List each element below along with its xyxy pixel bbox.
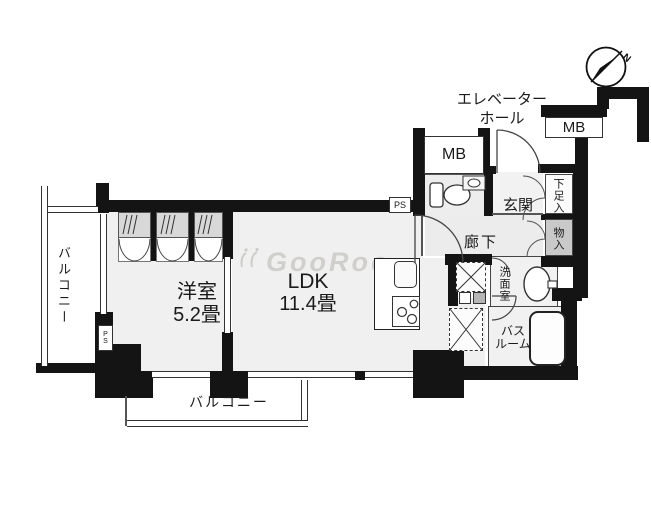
wall xyxy=(573,164,588,298)
corridor-label: 廊下 xyxy=(457,231,505,252)
kitchen-sink xyxy=(394,261,417,288)
elevator-hall-line2: ホール xyxy=(438,109,566,128)
balcony-bottom-left-edge xyxy=(125,396,127,426)
elevator-hall-label: エレベーター ホール xyxy=(438,90,566,128)
ldk-floor-ext xyxy=(422,258,449,350)
pipe-space-left-label: PS xyxy=(102,331,109,345)
closet-shelf xyxy=(194,212,223,238)
window xyxy=(100,214,107,314)
balcony-bottom-edge xyxy=(127,420,308,427)
closet-door-area xyxy=(194,238,223,262)
meter-box-right-label: MB xyxy=(563,119,586,136)
western-room-size: 5.2畳 xyxy=(155,304,239,327)
wall xyxy=(189,212,194,261)
door-arc-entrance xyxy=(497,130,540,173)
shoe-cabinet-label: 下足入 xyxy=(550,175,566,217)
appliance-space xyxy=(449,308,483,351)
laundry-pan xyxy=(456,262,486,292)
closet-door-area xyxy=(118,238,151,262)
pipe-space-left: PS xyxy=(98,325,113,351)
wall xyxy=(232,200,390,212)
elevator-hall-line1: エレベーター xyxy=(438,90,566,109)
balcony-left-label: バルコニー xyxy=(54,226,73,346)
closet-shelf xyxy=(156,212,189,238)
small-box-gray xyxy=(473,292,486,304)
corridor-edge-line xyxy=(421,215,423,256)
wall xyxy=(637,87,649,142)
washroom-label: 洗面室 xyxy=(496,261,512,307)
window xyxy=(365,371,413,378)
wall xyxy=(95,371,153,398)
ldk-name: LDK xyxy=(256,270,360,293)
ldk-label: LDK 11.4畳 xyxy=(256,270,360,316)
toilet-floor xyxy=(425,174,486,215)
wall xyxy=(222,332,233,373)
western-room-label: 洋室 5.2畳 xyxy=(155,281,239,327)
entrance-label: 玄関 xyxy=(494,194,542,215)
small-box-white xyxy=(459,292,471,304)
wall xyxy=(223,210,233,259)
balcony-bottom-label: バルコニー xyxy=(163,392,295,412)
closet-shelf xyxy=(118,212,151,238)
compass-north-label: N xyxy=(620,52,633,65)
balcony-left-edge xyxy=(41,186,48,366)
bathroom-line2: ルーム xyxy=(488,338,538,351)
closet-door-area xyxy=(156,238,189,262)
floor-plan: GooRoo MB xyxy=(0,0,651,529)
pipe-space-top-label: PS xyxy=(394,200,406,210)
pipe-space-top: PS xyxy=(389,197,411,213)
wall xyxy=(151,212,156,261)
window xyxy=(152,371,210,378)
ldk-size: 11.4畳 xyxy=(256,293,360,316)
wall xyxy=(484,170,493,216)
meter-box-left: MB xyxy=(424,136,484,174)
wall xyxy=(541,256,588,267)
compass-icon: N xyxy=(587,48,633,87)
window xyxy=(248,371,355,378)
meter-box-left-label: MB xyxy=(442,146,466,164)
wall xyxy=(108,200,233,212)
wall xyxy=(355,371,365,380)
wall xyxy=(413,350,464,398)
storage-label: 物入 xyxy=(550,222,566,256)
balcony-partition xyxy=(48,206,98,213)
western-room-name: 洋室 xyxy=(155,281,239,304)
wall xyxy=(455,366,578,380)
kitchen-stove xyxy=(392,296,420,327)
bathroom-label: バス ルーム xyxy=(488,325,538,351)
